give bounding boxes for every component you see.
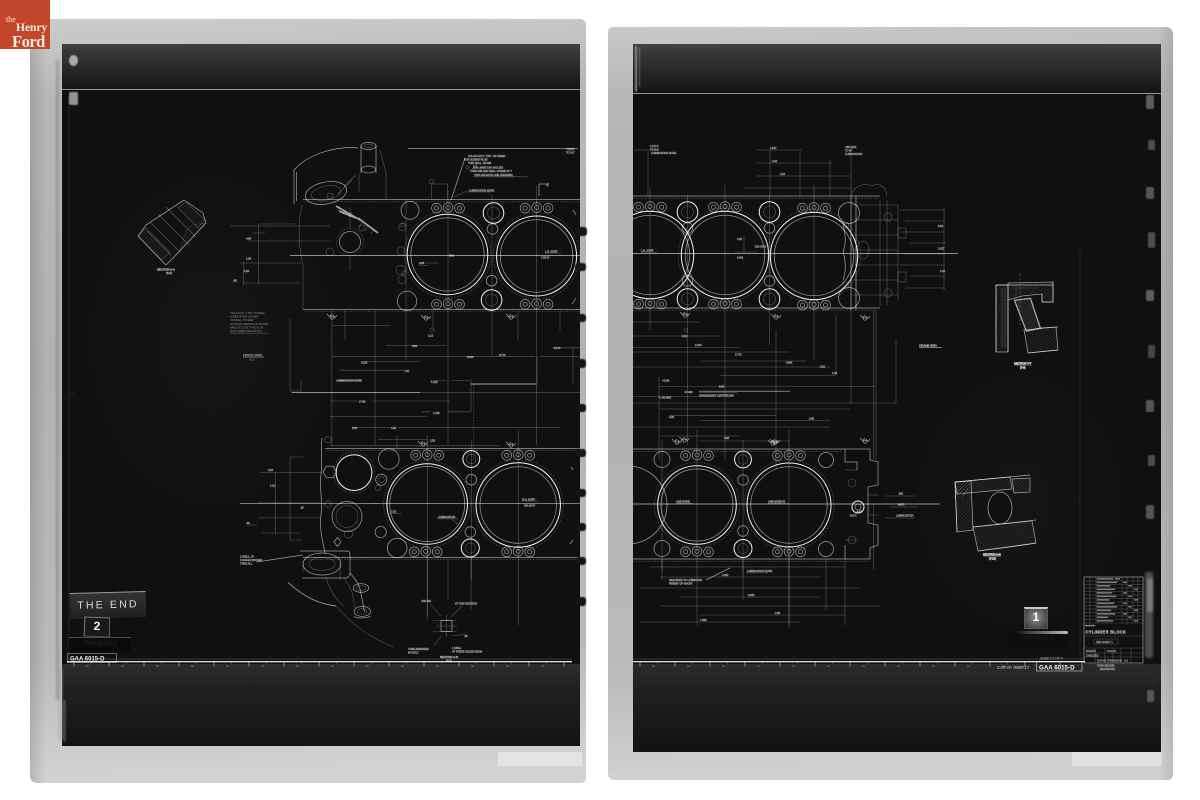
svg-text:15: 15 (827, 664, 830, 668)
svg-text:TO S.F: TO S.F (566, 150, 575, 154)
svg-text:FRONT VIEW: FRONT VIEW (243, 353, 262, 357)
svg-text:.500 DIA: .500 DIA (421, 599, 431, 603)
svg-text:60: 60 (331, 664, 334, 668)
svg-text:SECTION C-D: SECTION C-D (440, 655, 458, 659)
svg-text:2.81: 2.81 (352, 426, 358, 430)
svg-text:40: 40 (471, 664, 474, 668)
svg-text:L.H. SURF: L.H. SURF (641, 249, 654, 253)
svg-text:GAA 6015-D: GAA 6015-D (1039, 664, 1075, 671)
svg-text:AT THIS SECTION: AT THIS SECTION (455, 602, 477, 606)
svg-text:2.68: 2.68 (809, 417, 815, 421)
svg-text:3.56: 3.56 (391, 426, 397, 430)
svg-text:3-17-42: 3-17-42 (1097, 659, 1106, 663)
svg-text:2.252: 2.252 (748, 593, 755, 597)
svg-text:18: 18 (722, 664, 725, 668)
svg-text:16: 16 (792, 664, 795, 668)
svg-text:CHECKED: CHECKED (1086, 654, 1099, 658)
svg-text:8.103: 8.103 (467, 355, 474, 359)
svg-text:1.027: 1.027 (770, 146, 777, 150)
svg-text:7.62 W: 7.62 W (541, 255, 550, 259)
svg-text:.58: .58 (464, 634, 468, 638)
svg-text:(7-9): (7-9) (1020, 366, 1026, 370)
svg-text:(1-2): (1-2) (249, 358, 255, 362)
svg-text:DIA OF B: DIA OF B (755, 245, 766, 249)
svg-text:2.25: 2.25 (737, 237, 743, 241)
svg-text:2 DRILL .70: 2 DRILL .70 (240, 555, 254, 559)
svg-text:25 HOLES SPACED AS SHOWN: 25 HOLES SPACED AS SHOWN (230, 322, 268, 326)
svg-text:SECTION T-T: SECTION T-T (1014, 362, 1032, 366)
svg-text:TWO HOLES IN LINE (REAMED): TWO HOLES IN LINE (REAMED) (474, 173, 513, 177)
svg-text:1.155: 1.155 (433, 411, 440, 415)
svg-text:9.113: 9.113 (361, 360, 368, 364)
svg-text:TANK ENGINE: TANK ENGINE (1097, 664, 1115, 668)
svg-text:R.H. SURF: R.H. SURF (522, 497, 535, 501)
svg-text:4 1/2 R: 4 1/2 R (566, 147, 574, 151)
svg-text:E: E (547, 183, 550, 187)
svg-text:13: 13 (897, 664, 900, 668)
svg-text:2.06: 2.06 (244, 269, 250, 273)
svg-text:DIA 18 W: DIA 18 W (524, 503, 536, 507)
svg-text:LUBRICATION: LUBRICATION (845, 152, 862, 156)
svg-text:2.12: 2.12 (428, 334, 434, 338)
svg-text:TO S.F.: TO S.F. (650, 147, 659, 151)
svg-text:6 HOLES SPACED: 6 HOLES SPACED (240, 558, 262, 562)
svg-text:SECTION A-A: SECTION A-A (157, 268, 175, 272)
svg-text:2.22: 2.22 (820, 364, 826, 368)
svg-text:2.25: 2.25 (430, 439, 436, 443)
svg-text:50: 50 (401, 664, 404, 668)
svg-text:DIA: DIA (449, 254, 454, 258)
svg-text:LINE BORE: LINE BORE (676, 500, 690, 504)
svg-text:8.03: 8.03 (412, 344, 418, 348)
svg-text:1.38: 1.38 (246, 257, 252, 261)
svg-text:N.P.T.: N.P.T. (850, 514, 857, 518)
svg-text:45: 45 (436, 664, 439, 668)
svg-text:LINE BORE W: LINE BORE W (768, 500, 786, 504)
svg-text:REQUIRED TO LUBRICATE: REQUIRED TO LUBRICATE (669, 578, 702, 582)
svg-text:7.62: 7.62 (404, 369, 410, 373)
svg-text:GAA 6015-D: GAA 6015-D (70, 657, 105, 663)
svg-text:2.282: 2.282 (722, 573, 729, 577)
svg-text:1/4-18 N.P.T. TAP .62 DEEP: 1/4-18 N.P.T. TAP .62 DEEP (468, 154, 505, 158)
svg-text:ANGLES 15-30 TYPICAL OF: ANGLES 15-30 TYPICAL OF (230, 325, 264, 329)
svg-text:1.34: 1.34 (832, 371, 838, 375)
svg-text:BOTH SIDES SEE NOTE 2: BOTH SIDES SEE NOTE 2 (230, 329, 262, 333)
svg-text:7.088: 7.088 (700, 618, 707, 622)
svg-text:75: 75 (226, 664, 229, 668)
svg-text:11: 11 (967, 664, 970, 668)
svg-text:4.05: 4.05 (669, 415, 675, 419)
svg-text:DEARBORN: DEARBORN (1100, 667, 1115, 671)
svg-text:80: 80 (191, 664, 194, 668)
svg-text:LUBRICATION ZONE: LUBRICATION ZONE (747, 569, 772, 573)
svg-text:2.772: 2.772 (735, 353, 742, 357)
svg-text:FOR SCREW PLUG: FOR SCREW PLUG (464, 158, 488, 162)
svg-text:19: 19 (687, 664, 690, 668)
svg-text:8.03: 8.03 (938, 224, 944, 228)
svg-text:2.25: 2.25 (419, 261, 425, 265)
svg-text:.62: .62 (246, 521, 250, 525)
svg-text:90: 90 (121, 664, 124, 668)
svg-text:4.19: 4.19 (780, 172, 786, 176)
svg-text:DRAWN: DRAWN (1086, 649, 1096, 653)
svg-text:6.031: 6.031 (737, 256, 744, 260)
svg-text:SECTION A-B: SECTION A-B (983, 553, 1001, 557)
svg-text:(7-10): (7-10) (989, 557, 996, 561)
svg-text:7.62: 7.62 (391, 510, 397, 514)
svg-text:SEE SHEET 1: SEE SHEET 1 (1096, 640, 1113, 644)
svg-text:CRANKSHAFT CENTERLINE: CRANKSHAFT CENTERLINE (699, 393, 734, 397)
svg-text:2.88: 2.88 (775, 611, 781, 615)
svg-text:2.218: 2.218 (695, 343, 702, 347)
svg-text:TUBE INSERTED: TUBE INSERTED (408, 647, 429, 651)
svg-text:.38 DRILL .70 DEEP: .38 DRILL .70 DEEP (230, 318, 254, 322)
svg-text:95: 95 (86, 664, 89, 668)
svg-text:14: 14 (862, 664, 865, 668)
svg-text:70: 70 (261, 664, 264, 668)
svg-text:35: 35 (506, 664, 509, 668)
svg-text:4 1/16: 4 1/16 (662, 379, 670, 383)
svg-text:3-13-42: 3-13-42 (1107, 649, 1116, 653)
svg-text:1.12: 1.12 (270, 484, 276, 488)
svg-text:30: 30 (541, 664, 544, 668)
svg-text:55: 55 (366, 664, 369, 668)
svg-text:.28: .28 (300, 506, 304, 510)
svg-text:THIS WALL .25 MIN: THIS WALL .25 MIN (468, 161, 491, 165)
svg-text:(B-B): (B-B) (166, 271, 172, 275)
svg-text:IN HOLE: IN HOLE (408, 651, 419, 655)
svg-text:4.861: 4.861 (786, 361, 793, 365)
svg-text:PERMIT OF SHORT: PERMIT OF SHORT (669, 582, 693, 586)
svg-text:ORDNANCE: ORDNANCE (1107, 659, 1122, 663)
svg-text:4.05: 4.05 (246, 237, 252, 241)
svg-text:4 .40 MAX: 4 .40 MAX (659, 395, 671, 399)
svg-text:A-1: A-1 (1124, 659, 1129, 663)
svg-text:CYLINDER BLOCK: CYLINDER BLOCK (1086, 630, 1127, 635)
svg-text:17.048: 17.048 (685, 390, 693, 394)
svg-text:2.34: 2.34 (772, 159, 778, 163)
svg-text:12: 12 (932, 664, 935, 668)
svg-text:LUBRICATION: LUBRICATION (438, 515, 455, 519)
svg-text:65: 65 (296, 664, 299, 668)
svg-text:THRU RIB AND WALL CORED AT 7: THRU RIB AND WALL CORED AT 7 (470, 169, 512, 173)
svg-text:20: 20 (652, 664, 655, 668)
svg-text:CAR Nº 7089717: CAR Nº 7089717 (997, 665, 1030, 670)
svg-text:17.88: 17.88 (359, 400, 366, 404)
svg-text:1.125: 1.125 (431, 380, 438, 384)
svg-text:CRANK END: CRANK END (919, 344, 938, 348)
svg-text:1 DRILL: 1 DRILL (452, 646, 462, 650)
svg-text:2 1/2 R: 2 1/2 R (650, 144, 658, 148)
svg-text:17: 17 (757, 664, 760, 668)
svg-text:N.P.T.: N.P.T. (898, 503, 905, 507)
svg-text:6.770: 6.770 (499, 353, 506, 357)
svg-text:1.22: 1.22 (940, 269, 946, 273)
svg-text:.052: .052 (898, 492, 904, 496)
svg-text:L.H. SURF: L.H. SURF (545, 249, 558, 253)
svg-text:TO W: TO W (845, 149, 852, 153)
svg-text:3.16: 3.16 (268, 468, 274, 472)
svg-text:.9.42: .9.42 (856, 510, 862, 514)
svg-text:LUBRICATION ZONE: LUBRICATION ZONE (651, 151, 676, 155)
svg-text:.052 MAX: .052 MAX (845, 145, 857, 149)
svg-text:2.12: 2.12 (682, 334, 688, 338)
svg-text:8.50: 8.50 (719, 385, 725, 389)
svg-text:LUBRICATION ZONE: LUBRICATION ZONE (337, 379, 362, 383)
svg-text:7/16-14 N.C.-2 TAP .70 DEEP: 7/16-14 N.C.-2 TAP .70 DEEP (230, 311, 265, 315)
svg-text:85: 85 (156, 664, 159, 668)
svg-text:LUBRICATION: LUBRICATION (896, 514, 913, 518)
svg-text:.88: .88 (233, 279, 237, 283)
svg-text:LUBRICATION LEADER: LUBRICATION LEADER (230, 315, 258, 319)
svg-text:THRU ALL: THRU ALL (240, 562, 253, 566)
svg-text:AT THESE HOLES REAM: AT THESE HOLES REAM (452, 650, 482, 654)
svg-text:SHEET 2 OF 4: SHEET 2 OF 4 (1040, 657, 1063, 661)
